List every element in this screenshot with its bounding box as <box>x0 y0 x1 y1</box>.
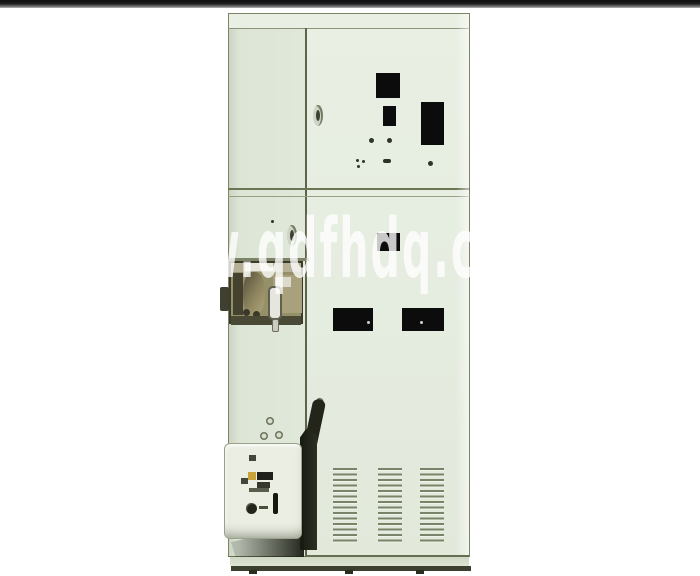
control-box-display <box>257 472 273 480</box>
ventilation-louver-column <box>420 468 444 545</box>
ventilation-louver-column <box>333 468 357 545</box>
control-box-indicator <box>241 478 248 484</box>
label-mark <box>383 159 391 163</box>
control-box-terminal-marks <box>249 488 269 492</box>
cabinet-plinth <box>230 557 469 566</box>
middle-meter-window-right <box>402 308 444 331</box>
upper-door-ring-handle <box>313 105 323 126</box>
control-box-knob-mark <box>259 506 268 509</box>
control-box-round-knob <box>246 503 257 514</box>
control-box-key-slot <box>273 493 278 514</box>
indicator-dot <box>369 138 374 143</box>
screw-dot <box>362 160 365 163</box>
reflection-speck <box>420 321 423 324</box>
cabinet-horizontal-rail-lower <box>228 196 470 197</box>
mechanism-knob <box>243 309 250 316</box>
photo-canvas: w.qdfhdq.c <box>0 0 700 576</box>
panel-knob <box>266 417 274 425</box>
panel-knob <box>275 431 283 439</box>
mechanism-bottom-edge <box>231 316 301 325</box>
control-box-yellow-button <box>248 472 256 480</box>
cabinet-top-rim-line <box>228 28 470 29</box>
upper-meter-window <box>376 73 400 98</box>
control-box-indicator <box>249 455 256 461</box>
control-box <box>224 443 302 539</box>
website-watermark: w.qdfhdq.c <box>202 209 502 291</box>
middle-meter-window-left <box>333 308 373 331</box>
upper-small-window <box>383 106 396 126</box>
cabinet-foot <box>416 570 424 574</box>
screw-dot <box>428 161 433 166</box>
indicator-dot <box>387 138 392 143</box>
reflection-speck <box>367 321 370 324</box>
cabinet-horizontal-rail-upper <box>228 188 470 190</box>
upper-tall-window <box>421 102 444 145</box>
cabinet-foot <box>345 570 353 574</box>
screw-dot <box>356 159 359 162</box>
operating-lever-stem <box>272 319 279 332</box>
screw-dot <box>357 165 360 168</box>
photo-top-border-bar <box>0 0 700 8</box>
cabinet-foot <box>249 570 257 574</box>
panel-knob <box>260 432 268 440</box>
ventilation-louver-column <box>378 468 402 545</box>
